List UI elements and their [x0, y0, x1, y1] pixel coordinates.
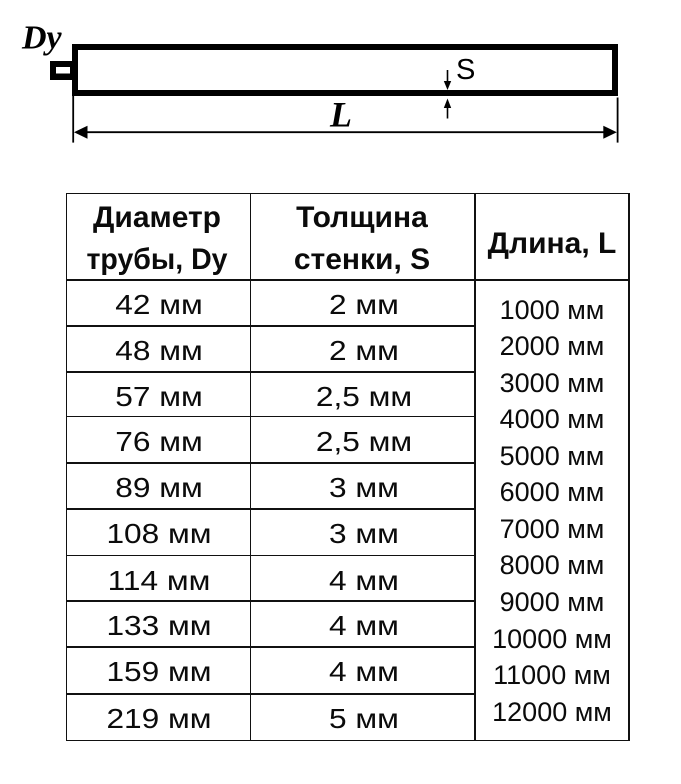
svg-text:Dy: Dy: [21, 20, 63, 57]
svg-text:L: L: [329, 95, 352, 135]
svg-text:S: S: [456, 54, 475, 86]
